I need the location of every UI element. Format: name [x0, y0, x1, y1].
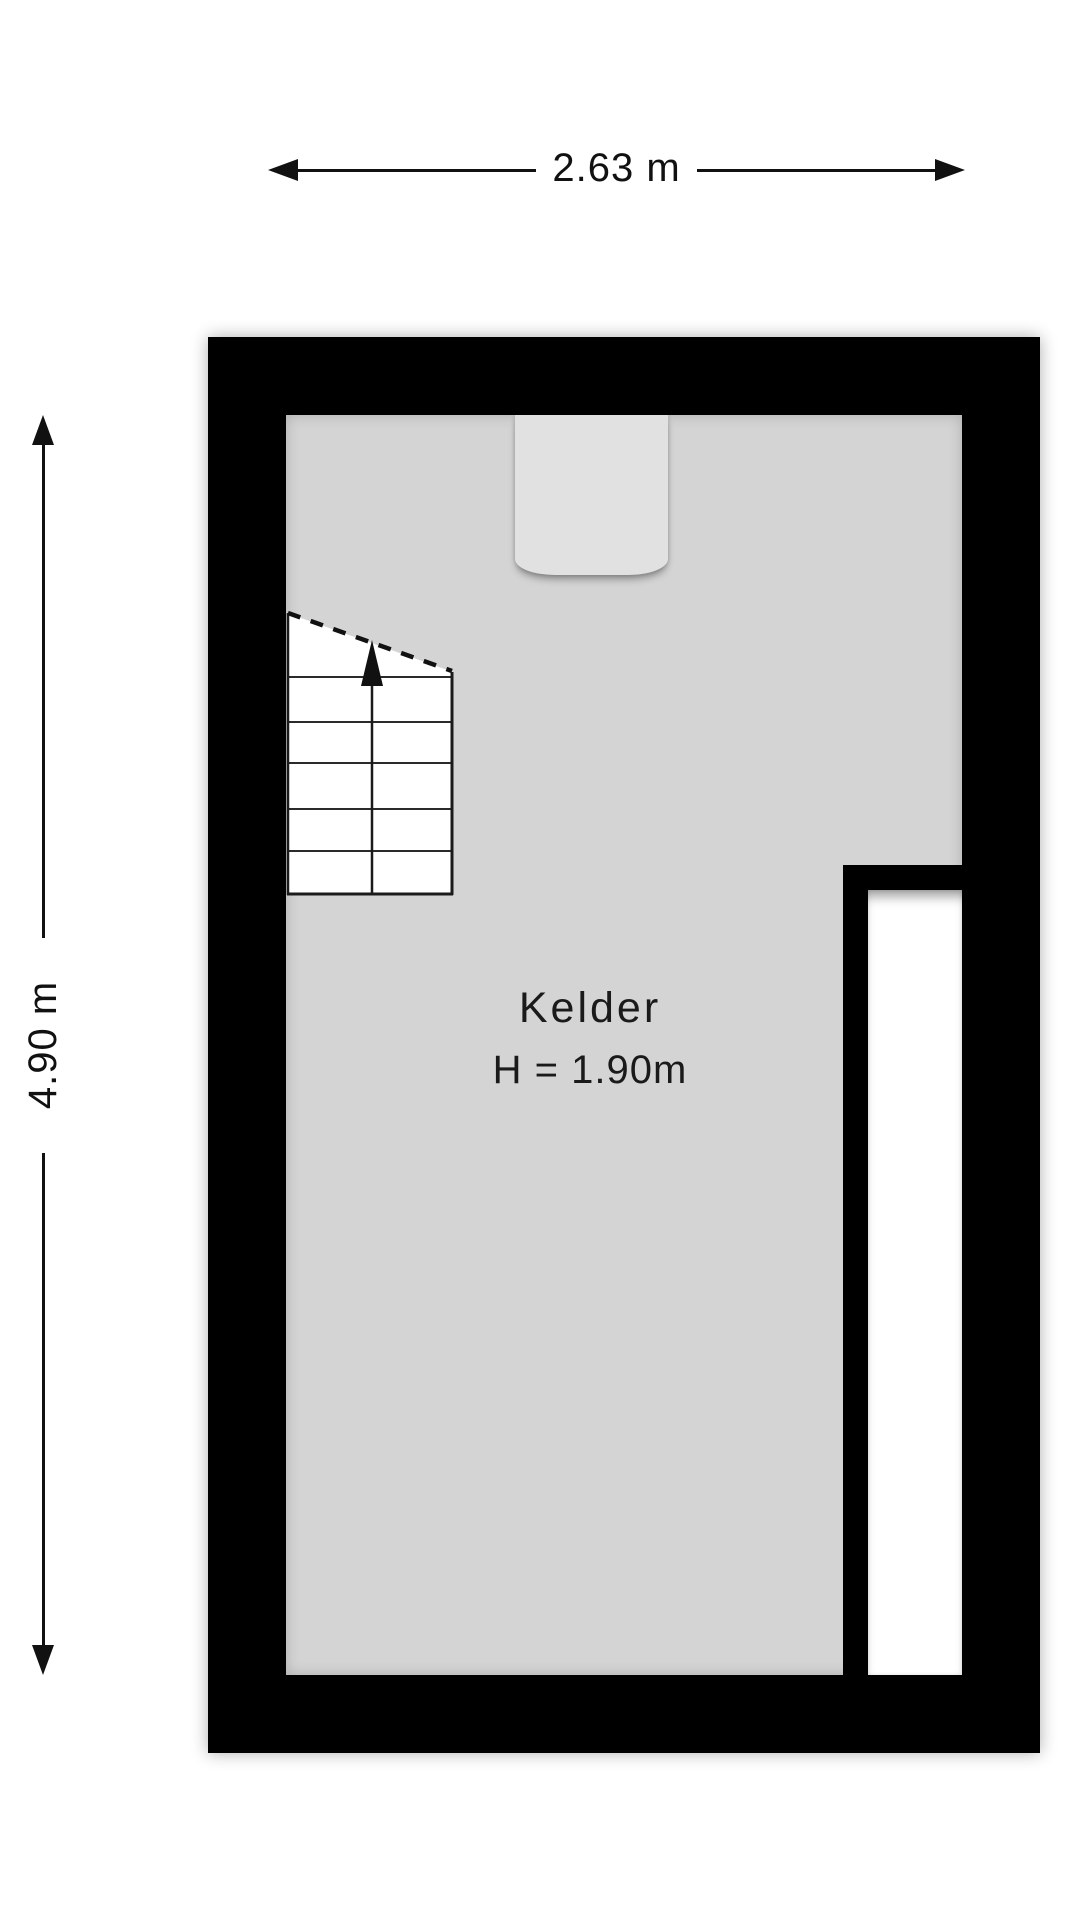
arrow-up-icon [32, 415, 54, 445]
partition-wall-vertical [843, 865, 868, 1675]
dimension-line-segment [298, 169, 536, 172]
staircase [286, 610, 456, 898]
height-dimension-label: 4.90 m [23, 981, 63, 1109]
floorplan-canvas: 2.63 m 4.90 m [0, 0, 1080, 1920]
wall-recess [868, 890, 962, 1675]
room-name-label: Kelder [390, 985, 790, 1032]
arrow-left-icon [268, 159, 298, 181]
floorplan-walls: Kelder H = 1.90m [208, 337, 1040, 1753]
room-label-block: Kelder H = 1.90m [390, 985, 790, 1092]
height-dimension: 4.90 m [21, 415, 65, 1675]
dimension-line-segment [42, 445, 45, 938]
dimension-line-segment [42, 1153, 45, 1646]
ceiling-height-label: H = 1.90m [390, 1048, 790, 1092]
width-dimension: 2.63 m [268, 148, 965, 192]
dimension-line-segment [697, 169, 935, 172]
arrow-down-icon [32, 1645, 54, 1675]
door-opening [515, 415, 668, 575]
arrow-right-icon [935, 159, 965, 181]
width-dimension-label: 2.63 m [536, 148, 696, 188]
